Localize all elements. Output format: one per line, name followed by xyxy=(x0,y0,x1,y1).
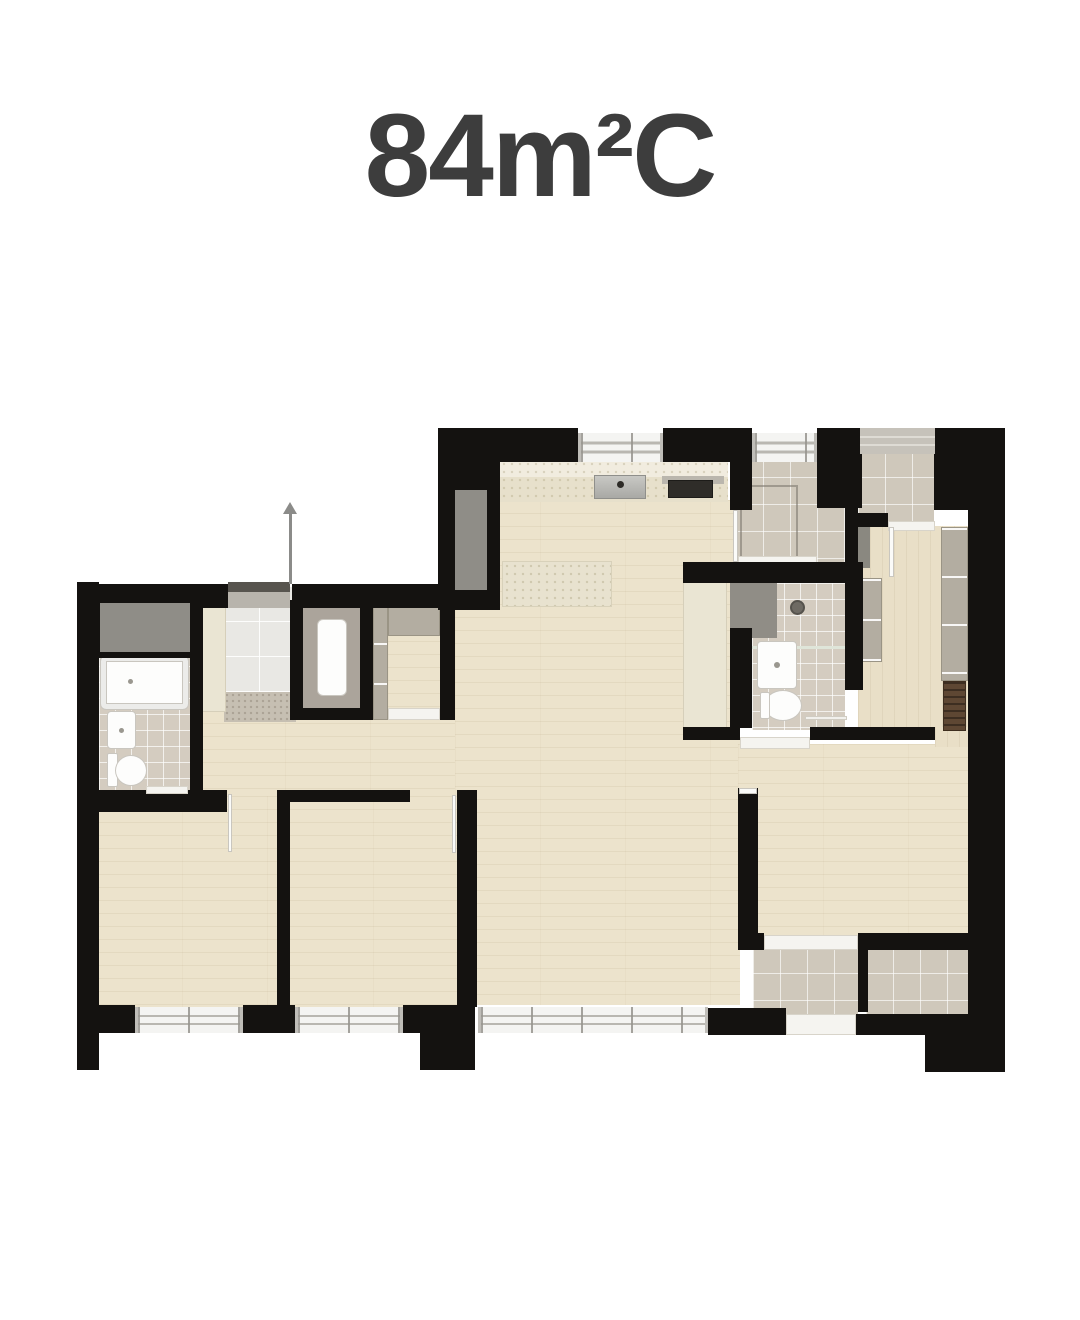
wall-pantry-mid xyxy=(360,600,373,720)
bedroom2-window xyxy=(295,1007,403,1033)
wall-bottom-seg3 xyxy=(708,1008,786,1035)
dressing-door-leaf xyxy=(889,527,894,577)
entrance-arrow-line xyxy=(289,514,292,584)
bathtub-drain xyxy=(128,679,133,684)
laundry-door-leaf xyxy=(733,510,738,562)
shower-head xyxy=(790,600,805,615)
room-bedroom2-floor xyxy=(288,796,460,1007)
kitchen-side-window xyxy=(455,490,487,590)
kitchen-island xyxy=(502,561,612,607)
plan-title: 84m²C xyxy=(0,88,1080,224)
balcony-right-floor xyxy=(866,946,968,1019)
kitchen-stove xyxy=(668,480,713,498)
entrance-door-threshold xyxy=(228,582,290,592)
bathtub xyxy=(100,655,189,710)
master-door-cap xyxy=(739,788,757,794)
entry-door-mat xyxy=(224,692,296,722)
wall-pantry-left xyxy=(290,600,303,720)
wall-living-master-divider xyxy=(738,788,758,935)
bathroom-left-window xyxy=(100,603,192,652)
wall-bottom-left-corner xyxy=(77,1005,135,1033)
wall-bottom-block2-ext xyxy=(420,1033,475,1070)
pantry1-storage xyxy=(317,619,347,696)
dressing-wardrobe-right xyxy=(941,527,968,681)
bedroom1-door-leaf xyxy=(228,794,232,852)
pantry2-shelf-strip xyxy=(373,602,388,720)
wall-bottom-seg1 xyxy=(243,1005,295,1033)
wall-bathroom-master-bottom-b xyxy=(810,727,935,740)
room-bedroom1-floor xyxy=(97,796,277,1007)
dressing-cabinet xyxy=(943,681,966,731)
wall-bottom-block2 xyxy=(403,1005,475,1033)
wall-right-outer xyxy=(968,428,1005,1035)
bedroom1-window xyxy=(135,1007,243,1033)
bathroom-master-door-sill xyxy=(740,737,810,749)
wall-bathroom-master-right xyxy=(845,583,863,690)
room-hallway-floor xyxy=(200,710,455,802)
utility-window xyxy=(860,428,935,454)
bathroom-master-sink-drain xyxy=(774,662,780,668)
hall-closet xyxy=(683,574,727,728)
wall-pantry1-bottom xyxy=(302,708,360,720)
wall-bathroom-master-bottom-a xyxy=(683,727,740,740)
living-room-window xyxy=(478,1007,708,1033)
bathroom-left-sink-drain xyxy=(119,728,124,733)
wall-top-3 xyxy=(817,428,862,508)
bedroom2-door-leaf xyxy=(452,795,456,853)
floorplan-page: 84m²C xyxy=(0,0,1080,1320)
bathroom-master-towel-bar xyxy=(805,716,847,720)
wall-bedroom2-top xyxy=(277,790,410,802)
balcony-left-floor xyxy=(753,946,858,1014)
wall-bedroom-divider xyxy=(277,790,290,1007)
kitchen-window xyxy=(578,433,663,462)
balcony-exit-sill xyxy=(786,1014,856,1035)
master-balcony-door-sill xyxy=(764,935,858,950)
entrance-arrow-icon xyxy=(283,502,297,514)
wall-bottom-right-corner xyxy=(925,1035,1005,1072)
bathroom-left-door-sill xyxy=(146,786,188,794)
kitchen-sink-faucet xyxy=(617,481,624,488)
bathroom-master-toilet-tank xyxy=(760,692,770,719)
wall-balcony-divider xyxy=(858,948,868,1012)
wall-bathroom-left-right xyxy=(190,597,203,795)
wall-kitchen-pillar xyxy=(730,428,752,510)
entry-closet xyxy=(200,600,226,712)
wall-bottom-seg4 xyxy=(856,1014,970,1035)
wall-bedroom2-living-divider xyxy=(457,790,477,1007)
dressing-door-sill xyxy=(888,521,935,531)
wall-master-bottom-b xyxy=(858,933,968,950)
pantry2-door-sill xyxy=(388,708,440,720)
wall-master-bottom-a xyxy=(738,933,764,950)
wall-bathroom-master-jog xyxy=(730,628,752,728)
bathroom-left-toilet-bowl xyxy=(115,755,147,786)
laundry-window xyxy=(752,433,817,462)
wall-utility-bottom xyxy=(858,513,888,527)
room-master-bedroom-floor xyxy=(738,744,968,935)
wall-pantry-right xyxy=(440,600,455,720)
entrance-door-step xyxy=(228,592,290,608)
wall-bathroom-master-top xyxy=(683,562,863,583)
